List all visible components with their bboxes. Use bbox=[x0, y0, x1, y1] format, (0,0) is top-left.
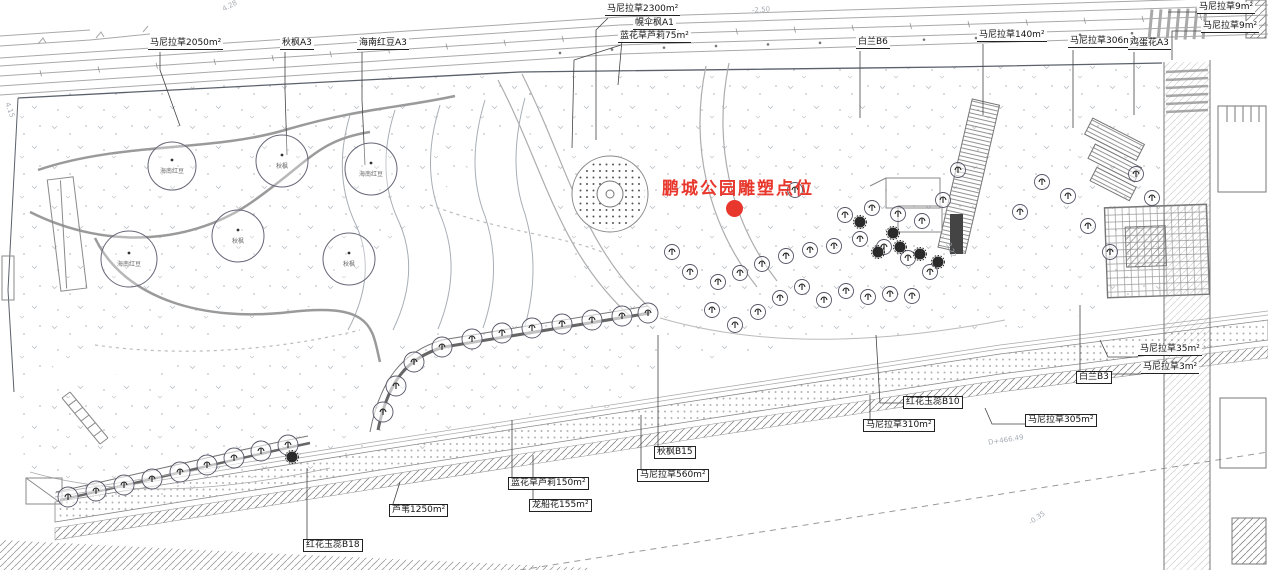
plant-label: 秋枫A3 bbox=[280, 38, 314, 50]
plan-drawing bbox=[0, 0, 1268, 570]
plant-label: 红花玉蕊B18 bbox=[303, 539, 363, 552]
plant-label: 马尼拉草3m² bbox=[1141, 362, 1199, 374]
canopy-tree-name: 海南红豆 bbox=[107, 261, 151, 268]
plant-label: 白兰B3 bbox=[1076, 371, 1112, 384]
plant-label: 马尼拉草2050m² bbox=[148, 38, 223, 50]
sculpture-annotation-title: 鹏城公园雕塑点位 bbox=[662, 178, 814, 200]
plant-label: 马尼拉草9m² bbox=[1197, 2, 1255, 14]
plant-label: 蓝花草芦莉75m² bbox=[618, 31, 691, 43]
plant-label: 马尼拉草310m² bbox=[863, 419, 935, 432]
elevation-mark: -2.50 bbox=[752, 5, 771, 14]
plant-label: 蓝花草芦莉150m² bbox=[508, 477, 589, 490]
canopy-tree-name: 海南红豆 bbox=[150, 168, 194, 175]
plant-label: 马尼拉草140m² bbox=[977, 30, 1047, 42]
canopy-tree-name: 秋枫 bbox=[216, 238, 260, 245]
plant-label: 马尼拉草9m² bbox=[1201, 21, 1259, 33]
plant-label: 秋枫B15 bbox=[654, 446, 696, 459]
canopy-tree-name: 秋枫 bbox=[327, 261, 371, 268]
plant-label: 幌伞枫A1 bbox=[633, 18, 676, 30]
circular-plaza bbox=[572, 156, 648, 232]
plant-label: 马尼拉草35m² bbox=[1138, 344, 1202, 356]
canopy-tree-name: 海南红豆 bbox=[349, 171, 393, 178]
side-road bbox=[1164, 62, 1210, 570]
plant-label: 红花玉蕊B10 bbox=[903, 396, 963, 409]
plant-label: 鸡蛋花A3 bbox=[1128, 38, 1171, 50]
plant-label: 芦苇1250m² bbox=[389, 504, 448, 517]
plant-label: 马尼拉草305m² bbox=[1025, 414, 1097, 427]
canopy-tree-name: 秋枫 bbox=[260, 163, 304, 170]
plant-label: 海南红豆A3 bbox=[357, 38, 409, 50]
plant-label: 龙船花155m² bbox=[529, 499, 592, 512]
plant-label: 马尼拉草2300m² bbox=[605, 4, 680, 16]
sculpture-marker-dot[interactable] bbox=[726, 200, 743, 217]
site-plan-canvas: 马尼拉草2050m² 秋枫A3 海南红豆A3 马尼拉草2300m² 幌伞枫A1 … bbox=[0, 0, 1268, 570]
plant-label: 白兰B6 bbox=[856, 37, 890, 49]
plant-label: 马尼拉草560m² bbox=[637, 469, 709, 482]
